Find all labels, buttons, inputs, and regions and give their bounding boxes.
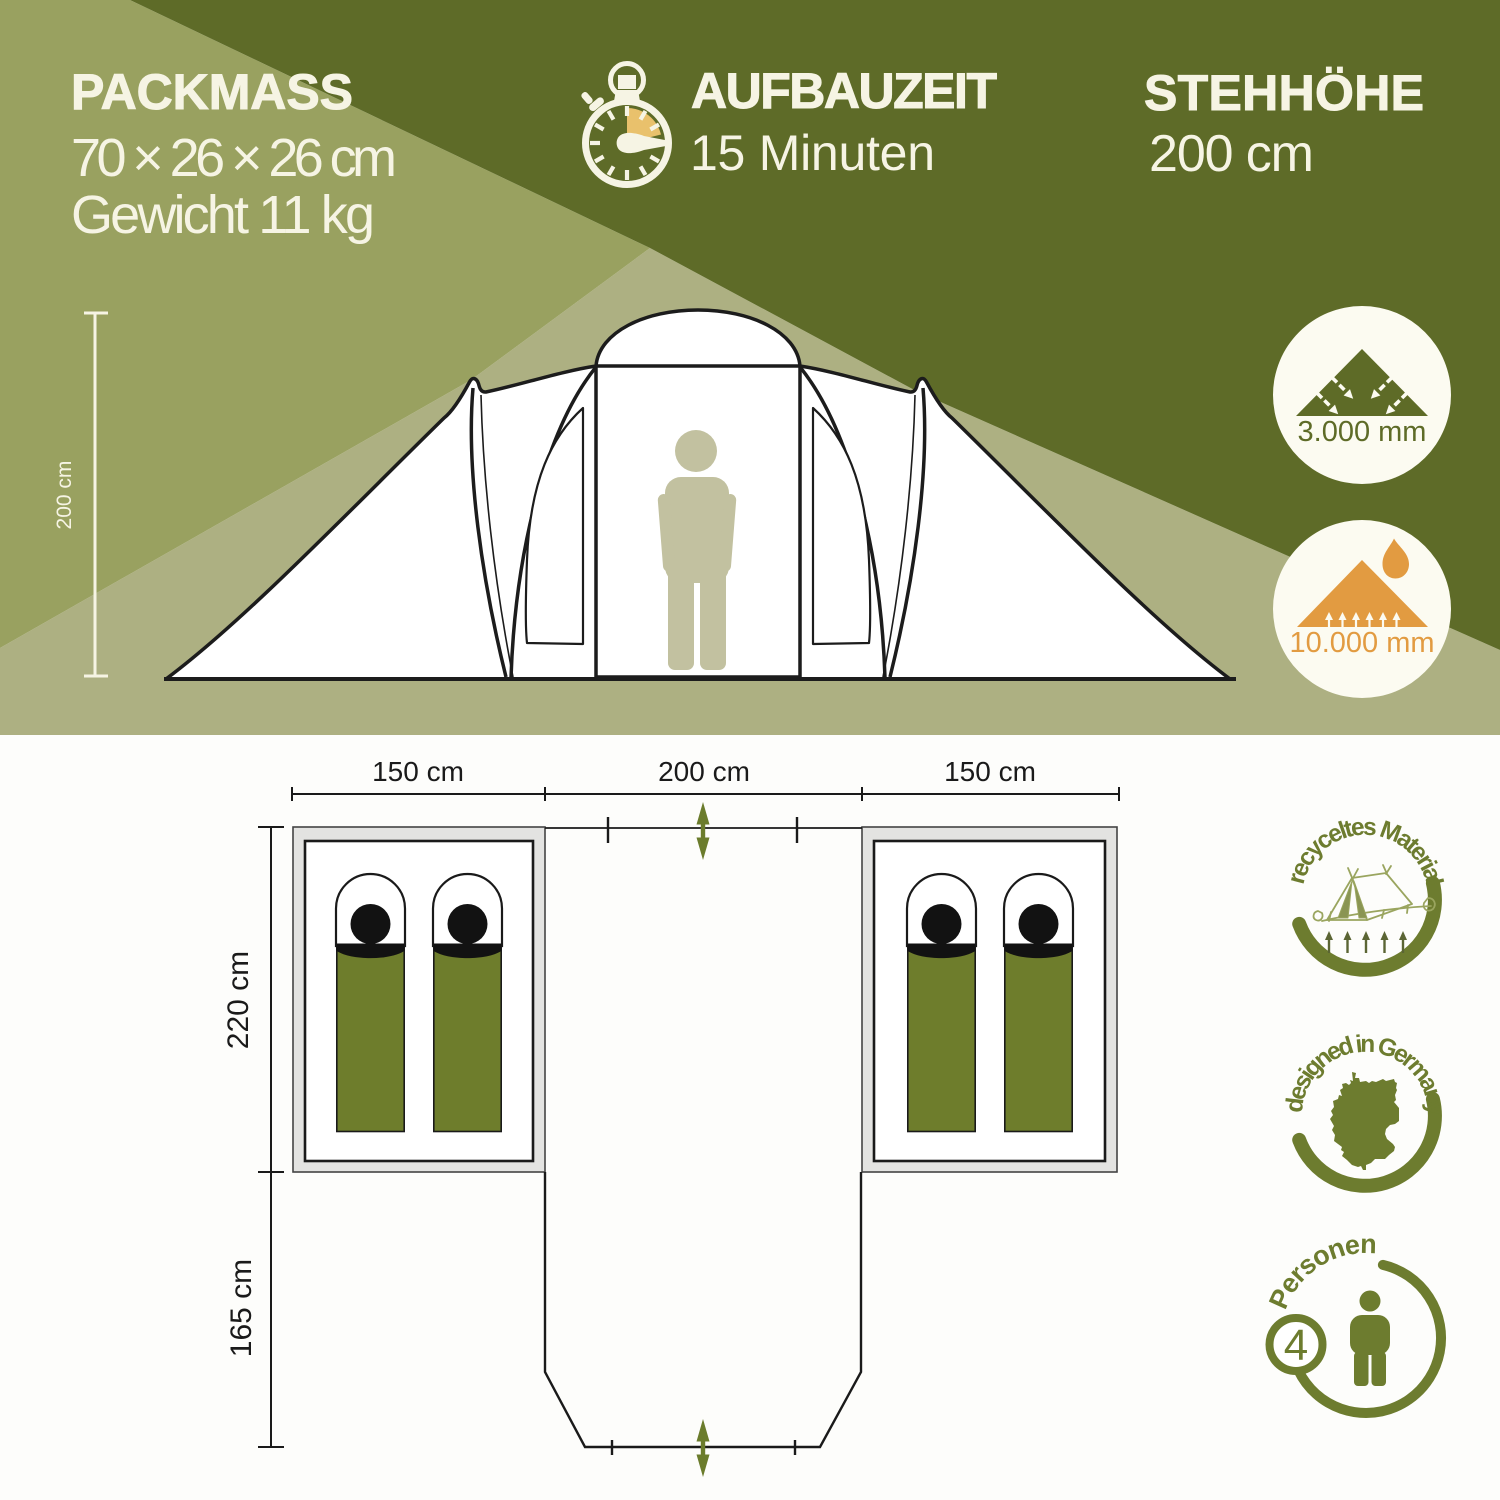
svg-text:10.000 mm: 10.000 mm xyxy=(1289,627,1434,659)
svg-text:4: 4 xyxy=(1284,1321,1308,1370)
svg-text:150 cm: 150 cm xyxy=(944,756,1036,787)
svg-text:3.000 mm: 3.000 mm xyxy=(1298,416,1427,448)
svg-text:150 cm: 150 cm xyxy=(372,756,464,787)
svg-text:Gewicht 11 kg: Gewicht 11 kg xyxy=(71,185,375,245)
svg-text:200 cm: 200 cm xyxy=(53,461,76,530)
svg-text:15 Minuten: 15 Minuten xyxy=(690,125,935,181)
svg-text:165 cm: 165 cm xyxy=(225,1259,258,1357)
svg-text:STEHHÖHE: STEHHÖHE xyxy=(1144,65,1424,121)
svg-text:220 cm: 220 cm xyxy=(222,951,255,1049)
svg-text:PACKMASS: PACKMASS xyxy=(71,64,353,120)
svg-text:200 cm: 200 cm xyxy=(658,756,750,787)
svg-text:200 cm: 200 cm xyxy=(1149,125,1314,183)
svg-text:70 × 26 × 26 cm: 70 × 26 × 26 cm xyxy=(71,128,397,188)
svg-text:AUFBAUZEIT: AUFBAUZEIT xyxy=(691,63,997,119)
